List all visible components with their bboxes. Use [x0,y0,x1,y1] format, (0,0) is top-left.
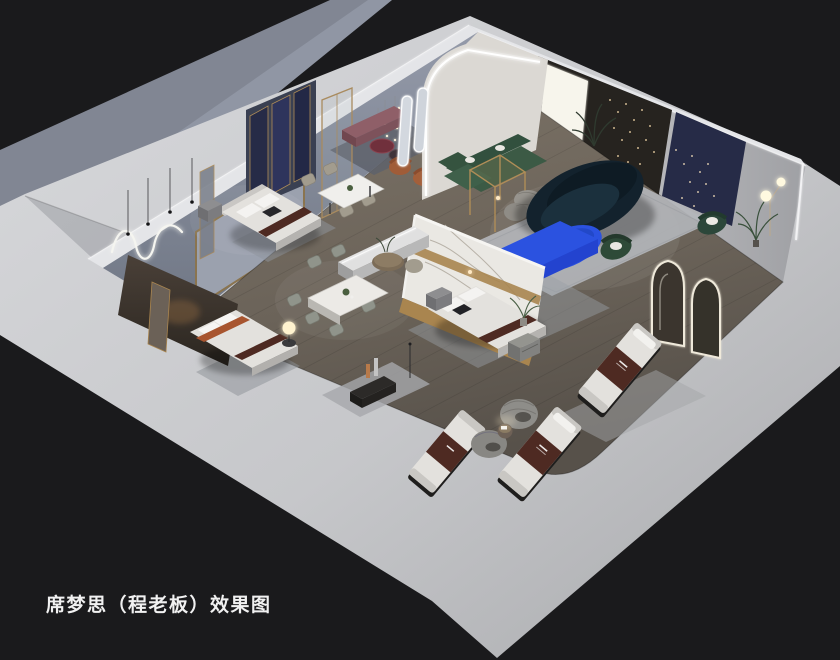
pillow [495,145,505,151]
pillow [465,157,475,163]
showroom-render [0,0,840,660]
spot-light-glow [496,415,516,427]
plant-centerpiece [343,289,350,296]
burgundy-side-table [370,139,394,153]
wall-lamp [468,270,472,274]
plant-centerpiece [347,185,353,191]
pillow [610,242,622,250]
mirror-strip [148,282,170,352]
render-caption: 席梦思（程老板）效果图 [46,590,272,617]
vase [374,358,378,376]
chair [405,259,423,273]
pillow [706,217,718,225]
vase [366,364,370,378]
